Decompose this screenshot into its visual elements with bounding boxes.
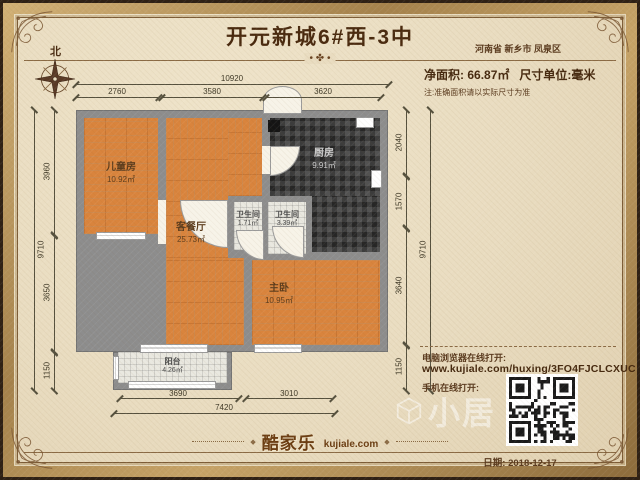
qr-code [506, 374, 578, 446]
corner-flourish-icon [9, 9, 55, 55]
dim-line [430, 110, 431, 390]
dim-label: 3960 [43, 152, 52, 192]
dim-line [406, 228, 407, 345]
label-bath-small: 卫生间 1.71㎡ [229, 210, 267, 229]
dim-label: 3580 [189, 87, 235, 96]
dim-label: 3650 [43, 273, 52, 313]
room-name: 卫生间 [229, 210, 267, 220]
room-area: 10.95㎡ [244, 296, 314, 306]
room-area: 3.39㎡ [266, 220, 308, 229]
dim-label: 2040 [395, 123, 404, 163]
window-kitchen-top [356, 117, 374, 128]
label-master: 主卧 10.95㎡ [244, 283, 314, 306]
entry-door-arc [263, 86, 302, 114]
dim-line [54, 110, 55, 235]
diamond-ornament-icon: ◆ [384, 438, 389, 446]
logo-chinese: 酷家乐 [262, 429, 316, 454]
window-balcony-bottom [128, 381, 216, 389]
dim-line [76, 97, 158, 98]
net-area-line: 净面积: 66.87㎡ 尺寸单位:毫米 [424, 66, 595, 83]
corner-flourish-icon [9, 425, 55, 471]
location-text: 河南省 新乡市 凤泉区 [425, 42, 611, 55]
dim-line [54, 235, 55, 352]
room-area: 10.92㎡ [84, 175, 158, 185]
label-balcony: 阳台 4.26㎡ [130, 357, 215, 376]
dim-label: 1570 [395, 182, 404, 222]
dim-label: 3620 [300, 87, 346, 96]
window-kitchen-right [371, 170, 382, 188]
dim-line [162, 97, 262, 98]
dim-line [34, 110, 35, 390]
dim-label: 10920 [209, 74, 255, 83]
dim-label: 9710 [37, 230, 46, 270]
dim-line [246, 398, 332, 399]
room-name: 阳台 [130, 357, 215, 367]
dim-label: 3640 [395, 266, 404, 306]
room-living [166, 258, 244, 345]
dim-line [114, 413, 334, 414]
dim-line [266, 97, 380, 98]
accuracy-note: 注:准确面积请以实际尺寸为准 [424, 87, 530, 98]
label-bath-large: 卫生间 3.39㎡ [266, 210, 308, 229]
dim-label: 3010 [266, 389, 312, 398]
kitchen-flue [268, 120, 280, 132]
corner-flourish-icon [585, 425, 631, 471]
room-living [166, 118, 228, 202]
dim-label: 3690 [155, 389, 201, 398]
room-kitchen [312, 196, 380, 252]
dim-label: 2760 [94, 87, 140, 96]
dim-line [406, 176, 407, 228]
window-kids [96, 232, 146, 240]
room-name: 客餐厅 [156, 222, 226, 235]
logo-dash-right [396, 441, 448, 442]
compass-icon [34, 58, 76, 100]
window-master [254, 344, 302, 353]
room-name: 厨房 [284, 148, 364, 161]
net-area-label: 净面积: [424, 68, 464, 82]
dim-line [120, 398, 238, 399]
room-name: 儿童房 [84, 162, 158, 175]
dim-line [54, 352, 55, 390]
corner-flourish-icon [585, 9, 631, 55]
mobile-open-label: 手机在线打开: [422, 381, 479, 394]
dim-line [76, 84, 388, 85]
room-area: 4.26㎡ [130, 367, 215, 376]
room-name: 主卧 [244, 283, 314, 296]
dim-line [406, 345, 407, 390]
floorplan-page: 开元新城6#西-3中 • ✤ • 河南省 新乡市 凤泉区 净面积: 66.87㎡… [0, 0, 640, 480]
dim-label: 1150 [395, 347, 404, 387]
room-area: 25.73㎡ [156, 235, 226, 245]
dim-line [406, 110, 407, 176]
net-area-value: 66.87㎡ [467, 68, 509, 82]
door-opening [262, 146, 270, 174]
info-separator [420, 346, 616, 347]
dim-label: 7420 [201, 403, 247, 412]
room-area: 9.91㎡ [284, 161, 364, 171]
logo-domain: kujiale.com [324, 439, 378, 450]
date-label: 日期: 2018-12-17 [430, 455, 610, 469]
dim-label: 9710 [419, 230, 428, 270]
room-living-hall [228, 118, 262, 196]
divider-ornament-icon: • ✤ • [305, 53, 336, 64]
window-balcony-left [113, 356, 119, 380]
room-name: 卫生间 [266, 210, 308, 220]
diamond-ornament-icon: ◆ [250, 438, 255, 446]
room-area: 1.71㎡ [229, 220, 267, 229]
label-kitchen: 厨房 9.91㎡ [284, 148, 364, 171]
balcony-slider-window [140, 344, 208, 353]
label-living-room: 客餐厅 25.73㎡ [156, 222, 226, 245]
unit-label: 尺寸单位:毫米 [519, 68, 595, 82]
label-kids-room: 儿童房 10.92㎡ [84, 162, 158, 185]
logo-dash-left [192, 441, 244, 442]
dim-label: 1150 [43, 351, 52, 391]
